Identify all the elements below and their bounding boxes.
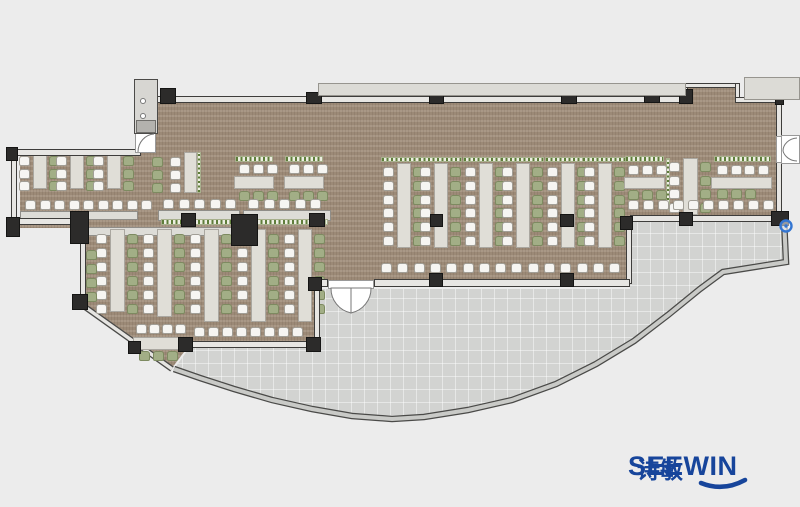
brand-logo: SEEWIN 诗敏 [628,451,800,491]
plan-shape [141,99,146,104]
plan-shape [141,114,146,119]
plan-shape [331,288,351,313]
brand-name-cn: 诗敏 [637,451,683,485]
floor-plan: SEEWIN 诗敏 [0,0,800,507]
plan-shape [138,134,154,152]
plan-shape [783,151,797,161]
plan-shape [784,224,787,227]
doors-and-marker [0,0,800,507]
plan-shape [783,138,797,151]
plan-shape [351,288,371,313]
